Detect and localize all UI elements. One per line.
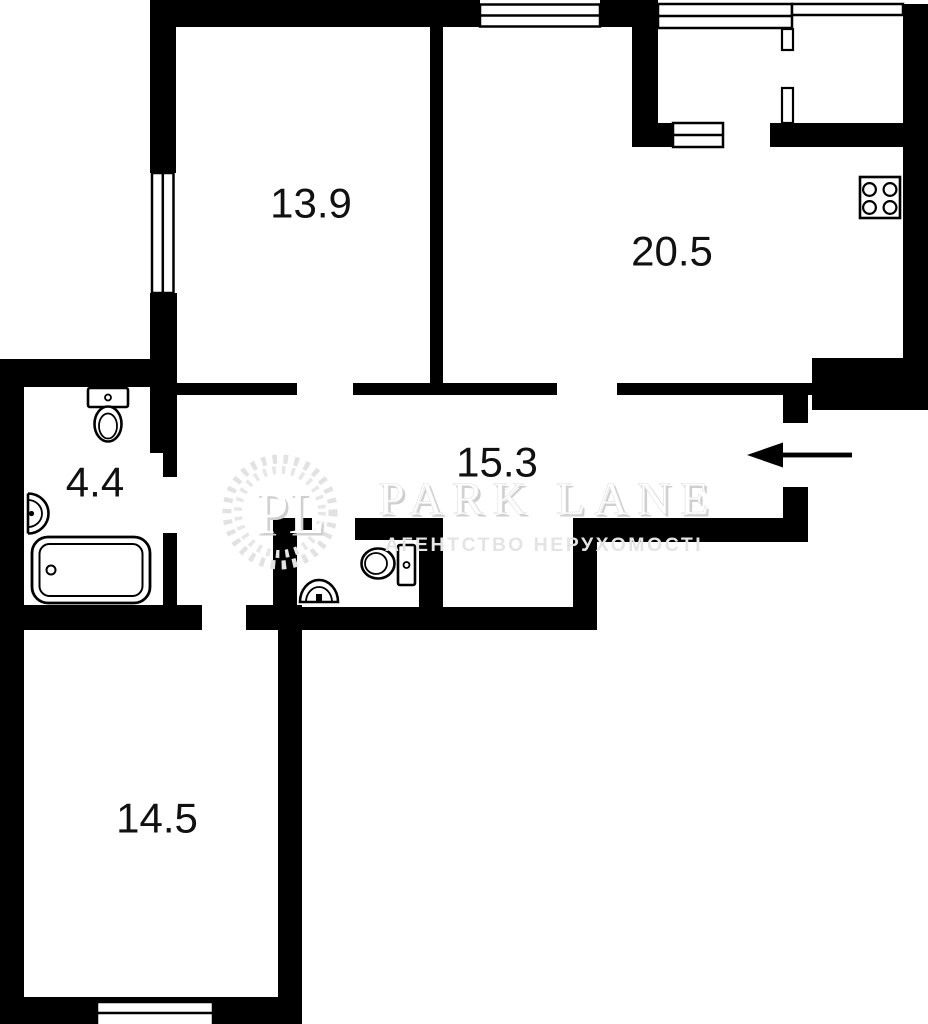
balcony-glazing-left — [658, 4, 792, 28]
watermark-brand: PARK LANE — [378, 473, 717, 525]
room-area-label-bottom: 14.5 — [116, 795, 198, 842]
burner — [863, 183, 876, 196]
tub-drain — [47, 566, 56, 575]
window-room-top-left — [152, 173, 174, 293]
floor-plan-drawing: 13.9 20.5 15.3 4.4 14.5 PL PL PARK LANE … — [0, 0, 928, 1024]
window-kitchen-top — [480, 5, 600, 27]
burner — [884, 201, 897, 214]
arrow-shaft — [783, 453, 852, 458]
watermark-initials: PL — [255, 480, 325, 546]
balcony-window-bottom — [673, 123, 723, 147]
room-area-label-kitchen: 20.5 — [631, 228, 713, 275]
watermark-tagline: АГЕНТСТВО НЕРУХОМОСТІ — [385, 534, 703, 556]
bathtub-icon — [32, 537, 150, 603]
toilet-icon — [88, 388, 128, 442]
basin-tap — [29, 511, 34, 516]
room-area-label-top-left: 13.9 — [270, 180, 352, 227]
corner-basin-icon — [300, 580, 338, 603]
flush-button — [105, 395, 111, 401]
balcony-railing-right — [792, 4, 903, 15]
toilet-bowl-inner — [365, 553, 387, 574]
balcony-divider — [782, 29, 793, 123]
watermark: PL PL PARK LANE PARK LANE АГЕНТСТВО НЕРУ… — [227, 459, 720, 565]
divider-lower — [782, 88, 793, 123]
burner — [884, 183, 897, 196]
toilet-bowl-inner — [99, 414, 117, 439]
entrance-arrow-icon — [747, 443, 852, 468]
window-room-bottom — [97, 1002, 213, 1024]
arrow-head — [747, 443, 783, 468]
stove-icon — [860, 177, 900, 218]
basin-tap — [316, 594, 322, 603]
burner — [863, 201, 876, 214]
flush-button — [404, 562, 410, 568]
railing-lines — [792, 4, 903, 15]
divider-upper — [782, 29, 793, 50]
wash-basin-icon — [28, 494, 48, 534]
floor-plan-page: 13.9 20.5 15.3 4.4 14.5 PL PL PARK LANE … — [0, 0, 928, 1024]
room-area-label-bathroom: 4.4 — [66, 459, 124, 506]
